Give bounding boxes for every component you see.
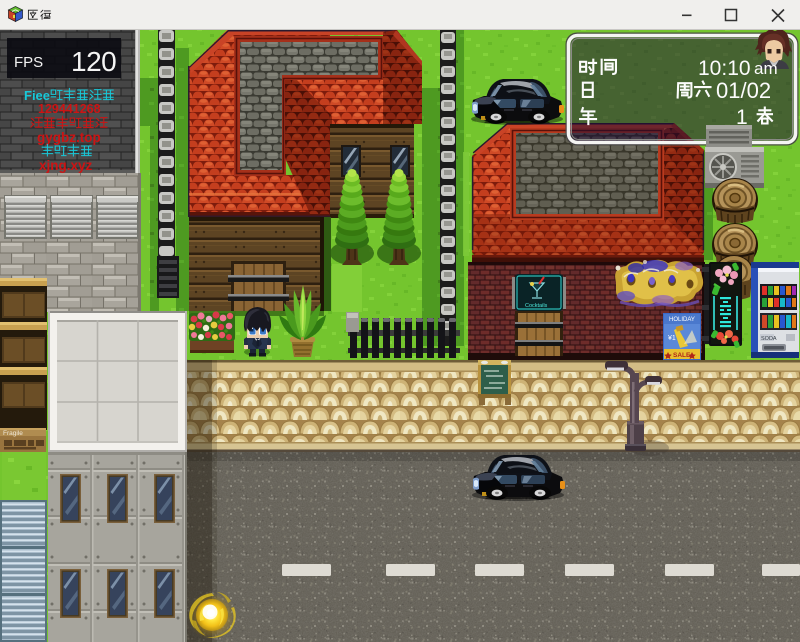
- svg-text:xjng.xyz: xjng.xyz: [39, 158, 93, 173]
- svg-text:Fiee: Fiee: [24, 88, 50, 103]
- svg-text:SALE: SALE: [673, 352, 691, 359]
- svg-text:FPS: FPS: [14, 54, 43, 71]
- svg-text:01/02: 01/02: [716, 78, 771, 103]
- svg-text:Fragile: Fragile: [3, 430, 23, 437]
- svg-text:¥1: ¥1: [668, 335, 676, 342]
- svg-text:10:10: 10:10: [698, 57, 751, 80]
- svg-text:129441268: 129441268: [38, 102, 101, 116]
- svg-text:Cocktails: Cocktails: [525, 303, 548, 309]
- svg-text:gygbz.top: gygbz.top: [37, 130, 101, 145]
- svg-text:am: am: [754, 59, 778, 78]
- svg-text:120: 120: [71, 46, 116, 77]
- svg-text:HOLIDAY: HOLIDAY: [669, 317, 695, 323]
- svg-text:SODA: SODA: [761, 336, 777, 342]
